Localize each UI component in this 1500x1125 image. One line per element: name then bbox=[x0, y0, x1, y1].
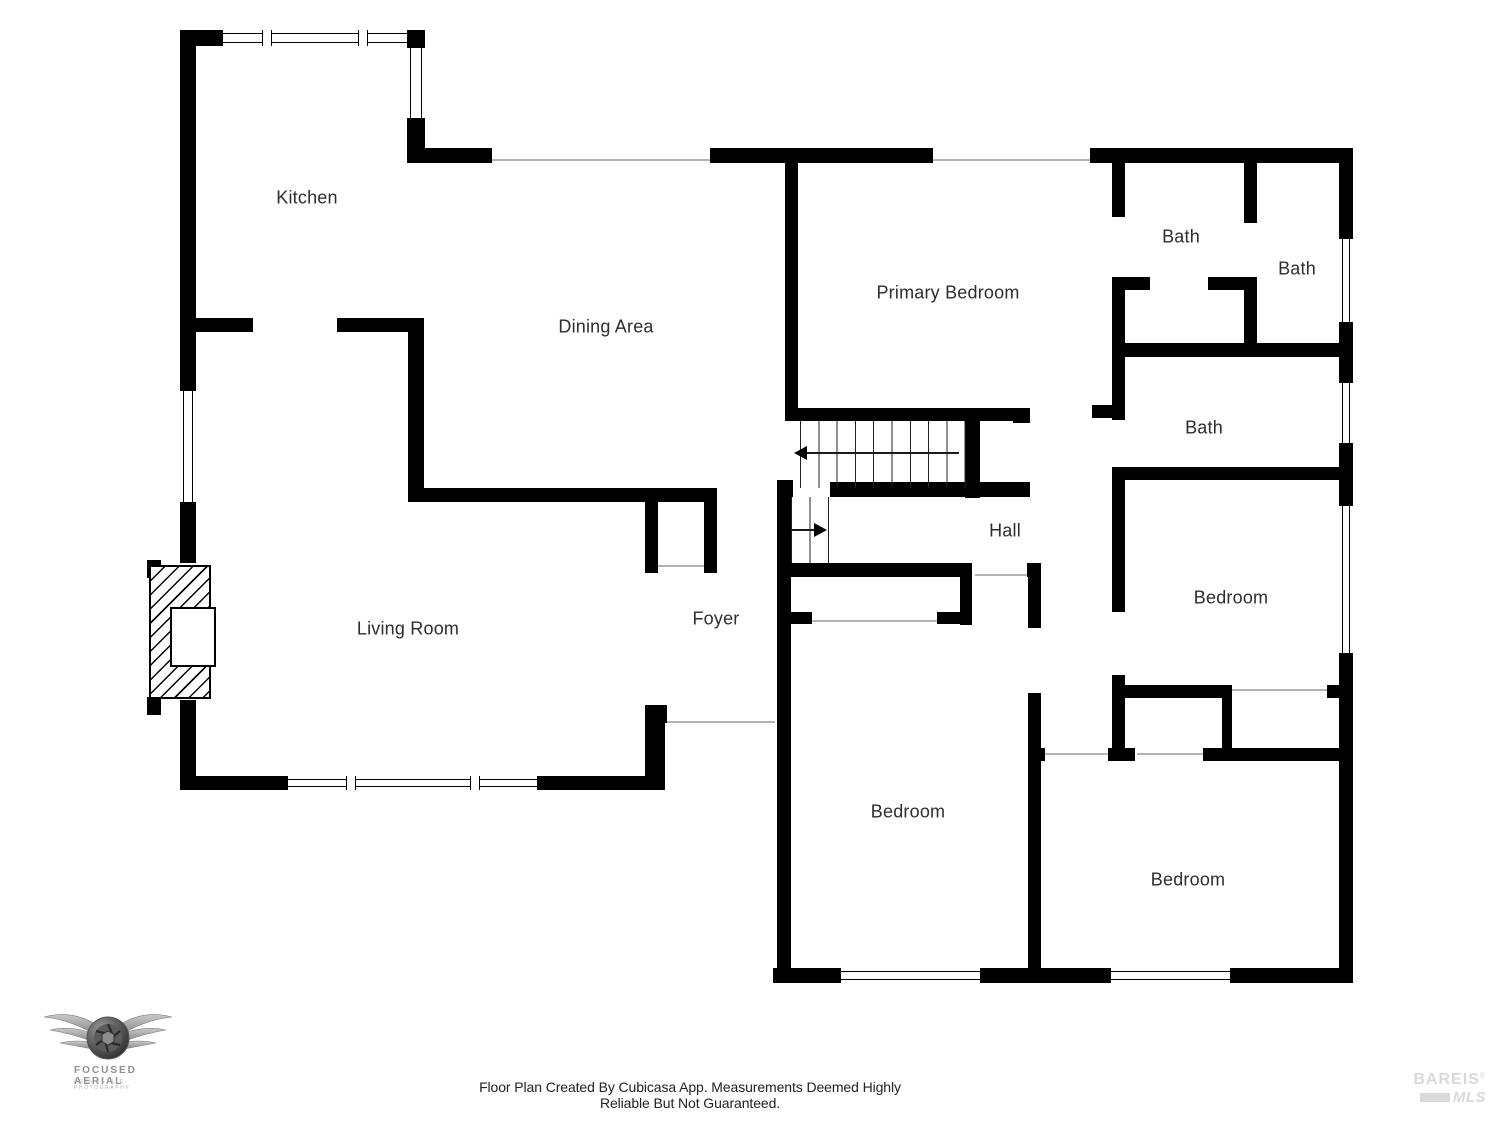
wall bbox=[180, 502, 196, 563]
wall bbox=[1112, 467, 1353, 480]
room-label-bedroom-middle: Bedroom bbox=[871, 802, 945, 823]
wall bbox=[704, 497, 717, 573]
wall bbox=[777, 480, 793, 497]
wall bbox=[408, 148, 492, 163]
wall bbox=[1112, 277, 1150, 290]
entry-door-line bbox=[667, 721, 775, 723]
wall bbox=[408, 318, 424, 502]
room-label-foyer: Foyer bbox=[692, 609, 739, 630]
sliding-door-line bbox=[933, 159, 1090, 161]
winged-camera-logo-icon bbox=[40, 1005, 176, 1067]
window bbox=[1339, 238, 1353, 324]
wall bbox=[1339, 148, 1353, 238]
wall bbox=[408, 488, 717, 502]
mls-logo-sub: MLS bbox=[1453, 1090, 1486, 1105]
stair-down-arrow-icon bbox=[814, 523, 827, 537]
wall bbox=[537, 776, 658, 790]
wall bbox=[980, 968, 1110, 983]
room-label-living-room: Living Room bbox=[357, 619, 459, 640]
window-mullion bbox=[358, 30, 368, 46]
mls-logo-name: BAREIS® bbox=[1413, 1072, 1486, 1088]
window bbox=[1339, 382, 1353, 445]
stair-treads-upper bbox=[800, 421, 966, 488]
window bbox=[407, 47, 425, 119]
fireplace-hearth bbox=[170, 607, 216, 667]
closet-sliding-door-line bbox=[658, 565, 704, 567]
wall bbox=[1028, 563, 1041, 628]
wall bbox=[1092, 405, 1114, 418]
mls-logo-bar bbox=[1420, 1093, 1450, 1102]
wall bbox=[1028, 693, 1041, 970]
wall bbox=[1208, 277, 1257, 290]
window bbox=[1339, 505, 1353, 655]
disclaimer-text: Floor Plan Created By Cubicasa App. Meas… bbox=[455, 1079, 925, 1111]
wall bbox=[1090, 148, 1353, 163]
wall bbox=[1244, 158, 1257, 223]
window bbox=[840, 968, 982, 983]
closet-sliding-door-line bbox=[812, 620, 937, 622]
closet-sliding-door-line bbox=[1232, 689, 1327, 691]
wall bbox=[147, 697, 161, 715]
wall bbox=[1339, 653, 1353, 983]
wall bbox=[937, 612, 972, 624]
wall bbox=[1030, 748, 1045, 761]
photographer-logo-tagline: REAL ESTATE PHOTOGRAPHY bbox=[74, 1079, 142, 1091]
room-label-bedroom-right: Bedroom bbox=[1194, 588, 1268, 609]
window-mullion bbox=[262, 30, 272, 46]
wall bbox=[790, 612, 812, 624]
room-label-bath-top-right: Bath bbox=[1278, 259, 1316, 280]
photographer-logo: FOCUSED AERIAL REAL ESTATE PHOTOGRAPHY bbox=[40, 1005, 176, 1090]
room-label-hall: Hall bbox=[989, 521, 1021, 542]
door-opening-line bbox=[1137, 753, 1203, 755]
wall bbox=[1112, 685, 1232, 698]
window bbox=[287, 776, 539, 790]
room-label-bath-middle: Bath bbox=[1185, 418, 1223, 439]
wall bbox=[1112, 343, 1353, 357]
stair-direction-line bbox=[803, 452, 959, 454]
wall bbox=[645, 718, 665, 790]
mls-logo: BAREIS® MLS bbox=[1413, 1072, 1486, 1105]
wall bbox=[1230, 968, 1353, 983]
wall bbox=[1013, 408, 1030, 423]
wall bbox=[1222, 693, 1232, 750]
wall bbox=[1203, 748, 1342, 761]
room-label-kitchen: Kitchen bbox=[276, 188, 337, 209]
room-label-dining-area: Dining Area bbox=[558, 317, 653, 338]
room-label-bath-ensuite: Bath bbox=[1162, 227, 1200, 248]
wall bbox=[180, 700, 196, 790]
window bbox=[180, 390, 196, 504]
room-label-bedroom-bottom-right: Bedroom bbox=[1151, 870, 1225, 891]
wall bbox=[787, 563, 970, 577]
wall bbox=[645, 497, 658, 573]
registered-trademark-icon: ® bbox=[1480, 1073, 1486, 1080]
wall bbox=[1327, 685, 1341, 698]
wall bbox=[785, 408, 1030, 421]
wall bbox=[1112, 467, 1125, 612]
wall bbox=[785, 158, 798, 420]
door-opening-line bbox=[975, 574, 1027, 576]
wall bbox=[180, 332, 196, 390]
room-label-primary-bedroom: Primary Bedroom bbox=[876, 283, 1019, 304]
window-mullion bbox=[470, 776, 480, 790]
wall bbox=[180, 776, 287, 790]
wall bbox=[180, 30, 196, 332]
wall bbox=[1108, 748, 1135, 761]
wall bbox=[710, 148, 933, 163]
window bbox=[1110, 968, 1232, 983]
door-opening-line bbox=[1045, 753, 1108, 755]
floor-plan: Kitchen Dining Area Primary Bedroom Bath… bbox=[0, 0, 1500, 1125]
window-mullion bbox=[346, 776, 356, 790]
sliding-door-line bbox=[492, 159, 710, 161]
stair-up-arrow-icon bbox=[794, 446, 807, 460]
wall bbox=[180, 318, 253, 332]
window bbox=[222, 30, 410, 46]
wall bbox=[1112, 158, 1125, 217]
